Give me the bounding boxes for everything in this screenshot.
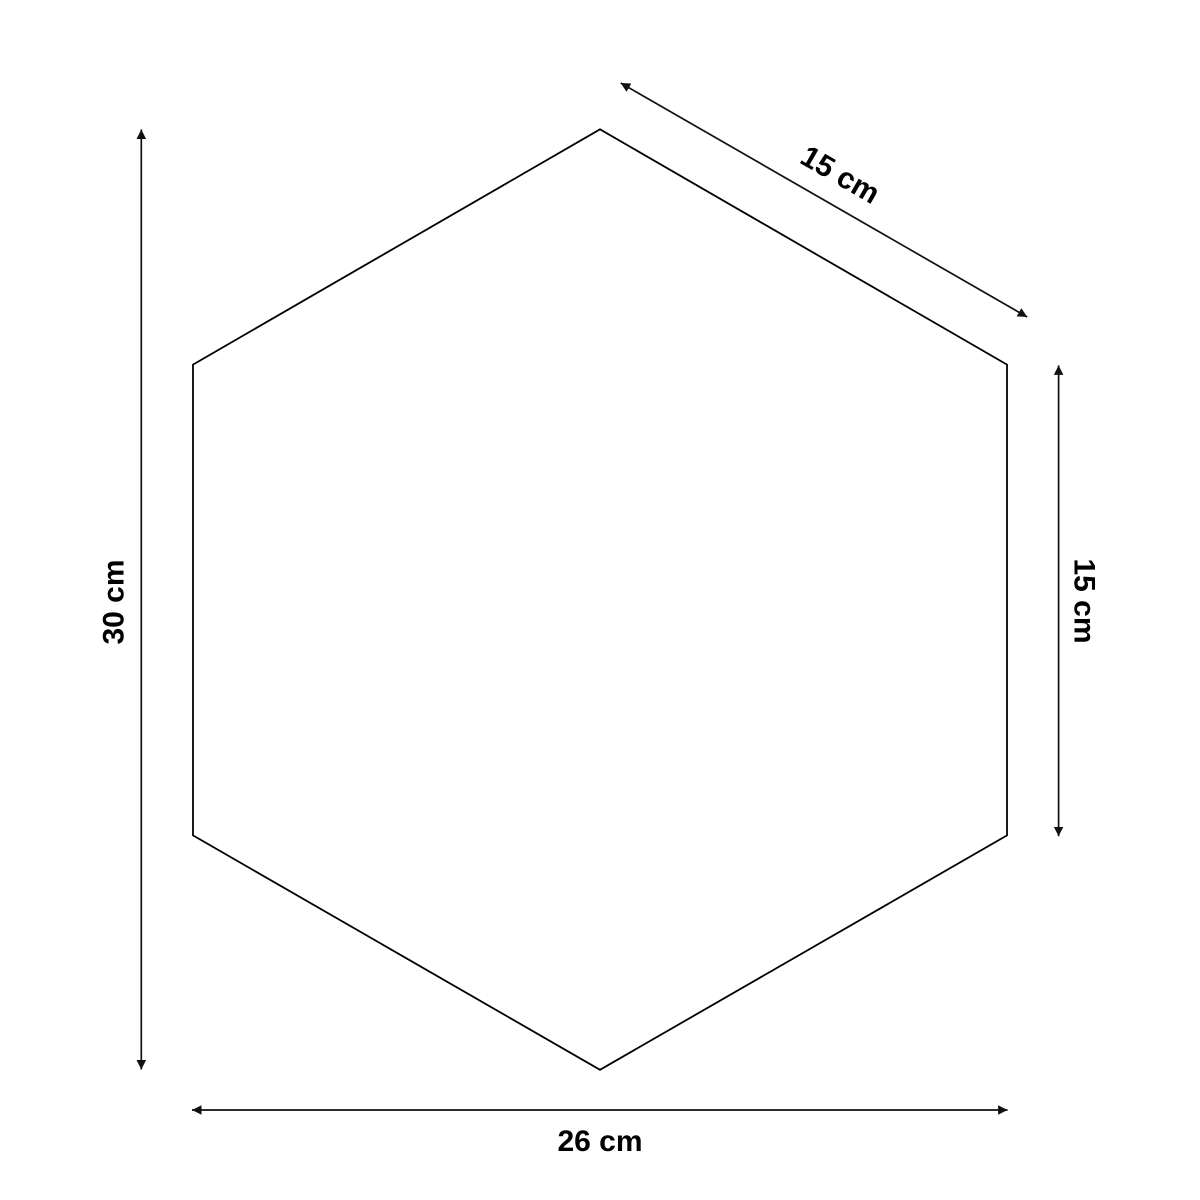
svg-text:26 cm: 26 cm (557, 1125, 642, 1158)
svg-text:30 cm: 30 cm (98, 559, 131, 644)
svg-text:15 cm: 15 cm (1068, 558, 1101, 643)
